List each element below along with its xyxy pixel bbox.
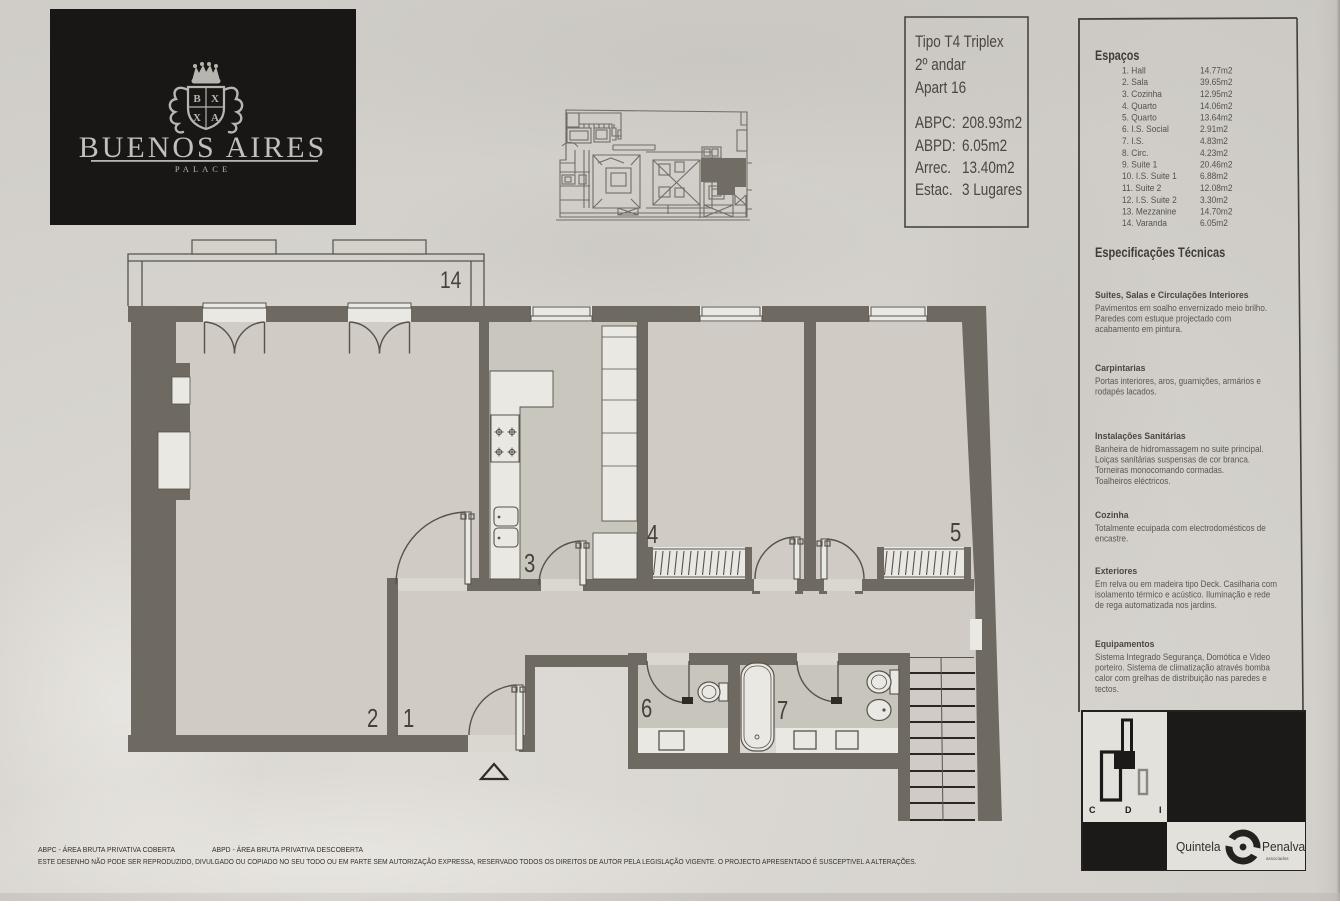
svg-text:C: C — [1089, 805, 1096, 815]
svg-text:Carpintarias: Carpintarias — [1095, 363, 1145, 374]
svg-text:PALACE: PALACE — [175, 164, 231, 174]
svg-text:encastre.: encastre. — [1095, 533, 1128, 544]
svg-text:9. Suite 1: 9. Suite 1 — [1122, 159, 1157, 170]
svg-text:6: 6 — [641, 694, 652, 723]
svg-text:Loiças sanitárias suspensas de: Loiças sanitárias suspensas de cor branc… — [1095, 454, 1250, 465]
svg-text:1: 1 — [403, 704, 414, 733]
svg-text:Cozinha: Cozinha — [1095, 510, 1129, 521]
svg-text:Estac.: Estac. — [915, 181, 953, 200]
svg-text:Suites, Salas e Circulações In: Suites, Salas e Circulações Interiores — [1095, 290, 1249, 301]
svg-text:13. Mezzanine: 13. Mezzanine — [1122, 206, 1176, 217]
svg-text:4: 4 — [647, 520, 658, 549]
svg-text:Quintela: Quintela — [1176, 840, 1221, 855]
svg-text:3. Cozinha: 3. Cozinha — [1122, 89, 1162, 100]
svg-text:isolamento térmico e acústico.: isolamento térmico e acústico. Iluminaçã… — [1095, 589, 1271, 600]
svg-text:5: 5 — [950, 518, 961, 547]
svg-text:8. Circ.: 8. Circ. — [1122, 147, 1148, 158]
svg-text:12.95m2: 12.95m2 — [1200, 89, 1233, 100]
svg-text:6. I.S. Social: 6. I.S. Social — [1122, 124, 1169, 135]
svg-text:de rega automatizada nos jardi: de rega automatizada nos jardins. — [1095, 600, 1217, 611]
svg-text:13.40m2: 13.40m2 — [962, 159, 1015, 178]
svg-text:2.91m2: 2.91m2 — [1200, 124, 1228, 135]
svg-text:ABPD:: ABPD: — [915, 137, 956, 156]
svg-text:ESTE DESENHO NÃO PODE SER REPR: ESTE DESENHO NÃO PODE SER REPRODUZIDO, D… — [38, 857, 917, 866]
svg-text:14.77m2: 14.77m2 — [1200, 65, 1233, 76]
svg-text:Tipo T4 Triplex: Tipo T4 Triplex — [915, 33, 1004, 52]
svg-text:14: 14 — [440, 266, 461, 294]
svg-text:Pavimentos em soalho enverniza: Pavimentos em soalho envernizado meio br… — [1095, 303, 1267, 314]
svg-text:tectos.: tectos. — [1095, 683, 1119, 694]
svg-text:ABPC - ÁREA BRUTA PRIVATIVA CO: ABPC - ÁREA BRUTA PRIVATIVA COBERTA — [38, 845, 175, 854]
svg-text:2: 2 — [367, 704, 378, 733]
svg-text:Arrec.: Arrec. — [915, 159, 951, 178]
svg-text:7. I.S.: 7. I.S. — [1122, 136, 1144, 147]
svg-text:X: X — [211, 93, 219, 105]
svg-text:2. Sala: 2. Sala — [1122, 77, 1148, 88]
svg-text:rodapés lacados.: rodapés lacados. — [1095, 386, 1157, 397]
svg-text:Sistema Integrado Segurança, D: Sistema Integrado Segurança, Domótica e … — [1095, 652, 1270, 663]
svg-text:14. Varanda: 14. Varanda — [1122, 218, 1167, 229]
svg-text:Instalações Sanitárias: Instalações Sanitárias — [1095, 431, 1186, 442]
svg-text:Paredes com estuque projectado: Paredes com estuque projectado com — [1095, 313, 1231, 324]
svg-text:Apart 16: Apart 16 — [915, 79, 966, 98]
svg-text:1. Hall: 1. Hall — [1122, 65, 1146, 76]
svg-text:porteiro. Sistema de climatiza: porteiro. Sistema de climatização atravé… — [1095, 662, 1270, 673]
svg-text:3: 3 — [524, 549, 535, 578]
svg-text:13.64m2: 13.64m2 — [1200, 112, 1233, 123]
svg-text:6.05m2: 6.05m2 — [962, 137, 1007, 156]
svg-text:BUENOS AIRES: BUENOS AIRES — [79, 131, 328, 164]
svg-text:3 Lugares: 3 Lugares — [962, 181, 1022, 200]
svg-text:ABPC:: ABPC: — [915, 114, 956, 133]
svg-text:Penalva: Penalva — [1262, 840, 1305, 855]
svg-text:11. Suite 2: 11. Suite 2 — [1122, 183, 1161, 194]
svg-text:3.30m2: 3.30m2 — [1200, 194, 1228, 205]
svg-text:Totalmente ecuipada com electr: Totalmente ecuipada com electrodoméstico… — [1095, 523, 1266, 534]
svg-text:acabamento em pintura.: acabamento em pintura. — [1095, 324, 1182, 335]
svg-text:calor com grelhas de distribui: calor com grelhas de distribuição nas pa… — [1095, 673, 1267, 684]
svg-text:associados: associados — [1266, 856, 1289, 861]
svg-text:Banheira de hidromassagem no: Banheira de hidromassagem no suite princ… — [1095, 444, 1264, 455]
svg-text:Espaços: Espaços — [1095, 48, 1140, 63]
svg-text:Torneiras monocomando cormadas: Torneiras monocomando cormadas. — [1095, 465, 1224, 476]
svg-text:B: B — [193, 93, 201, 105]
svg-text:39.65m2: 39.65m2 — [1200, 77, 1233, 88]
svg-text:Especificações Técnicas: Especificações Técnicas — [1095, 245, 1225, 260]
svg-text:20.46m2: 20.46m2 — [1200, 159, 1233, 170]
svg-text:14.70m2: 14.70m2 — [1200, 206, 1233, 217]
svg-text:4.83m2: 4.83m2 — [1200, 136, 1228, 147]
svg-text:6.88m2: 6.88m2 — [1200, 171, 1228, 182]
svg-text:A: A — [211, 112, 219, 124]
svg-text:10. I.S. Suite 1: 10. I.S. Suite 1 — [1122, 171, 1177, 182]
svg-text:I: I — [1159, 805, 1162, 815]
svg-text:7: 7 — [777, 696, 788, 725]
svg-text:Em relva ou em madeira tipo De: Em relva ou em madeira tipo Deck. Casilh… — [1095, 579, 1277, 590]
svg-text:4. Quarto: 4. Quarto — [1122, 100, 1157, 111]
svg-text:D: D — [1125, 805, 1132, 815]
svg-text:Toalheiros eléctricos.: Toalheiros eléctricos. — [1095, 475, 1171, 486]
svg-text:Equipamentos: Equipamentos — [1095, 639, 1154, 650]
svg-text:Exteriores: Exteriores — [1095, 566, 1137, 577]
svg-text:6.05m2: 6.05m2 — [1200, 218, 1228, 229]
svg-text:12. I.S. Suite 2: 12. I.S. Suite 2 — [1122, 194, 1177, 205]
svg-text:4.23m2: 4.23m2 — [1200, 147, 1228, 158]
svg-text:14.06m2: 14.06m2 — [1200, 100, 1233, 111]
svg-text:X: X — [193, 112, 201, 124]
svg-text:Portas interiores, aros, guarn: Portas interiores, aros, guarnições, arm… — [1095, 376, 1261, 387]
svg-text:2º andar: 2º andar — [915, 56, 966, 75]
svg-text:208.93m2: 208.93m2 — [962, 114, 1022, 133]
svg-text:12.08m2: 12.08m2 — [1200, 183, 1233, 194]
svg-text:5. Quarto: 5. Quarto — [1122, 112, 1157, 123]
svg-text:ABPD - ÁREA BRUTA PRIVATIVA DE: ABPD - ÁREA BRUTA PRIVATIVA DESCOBERTA — [212, 845, 363, 854]
